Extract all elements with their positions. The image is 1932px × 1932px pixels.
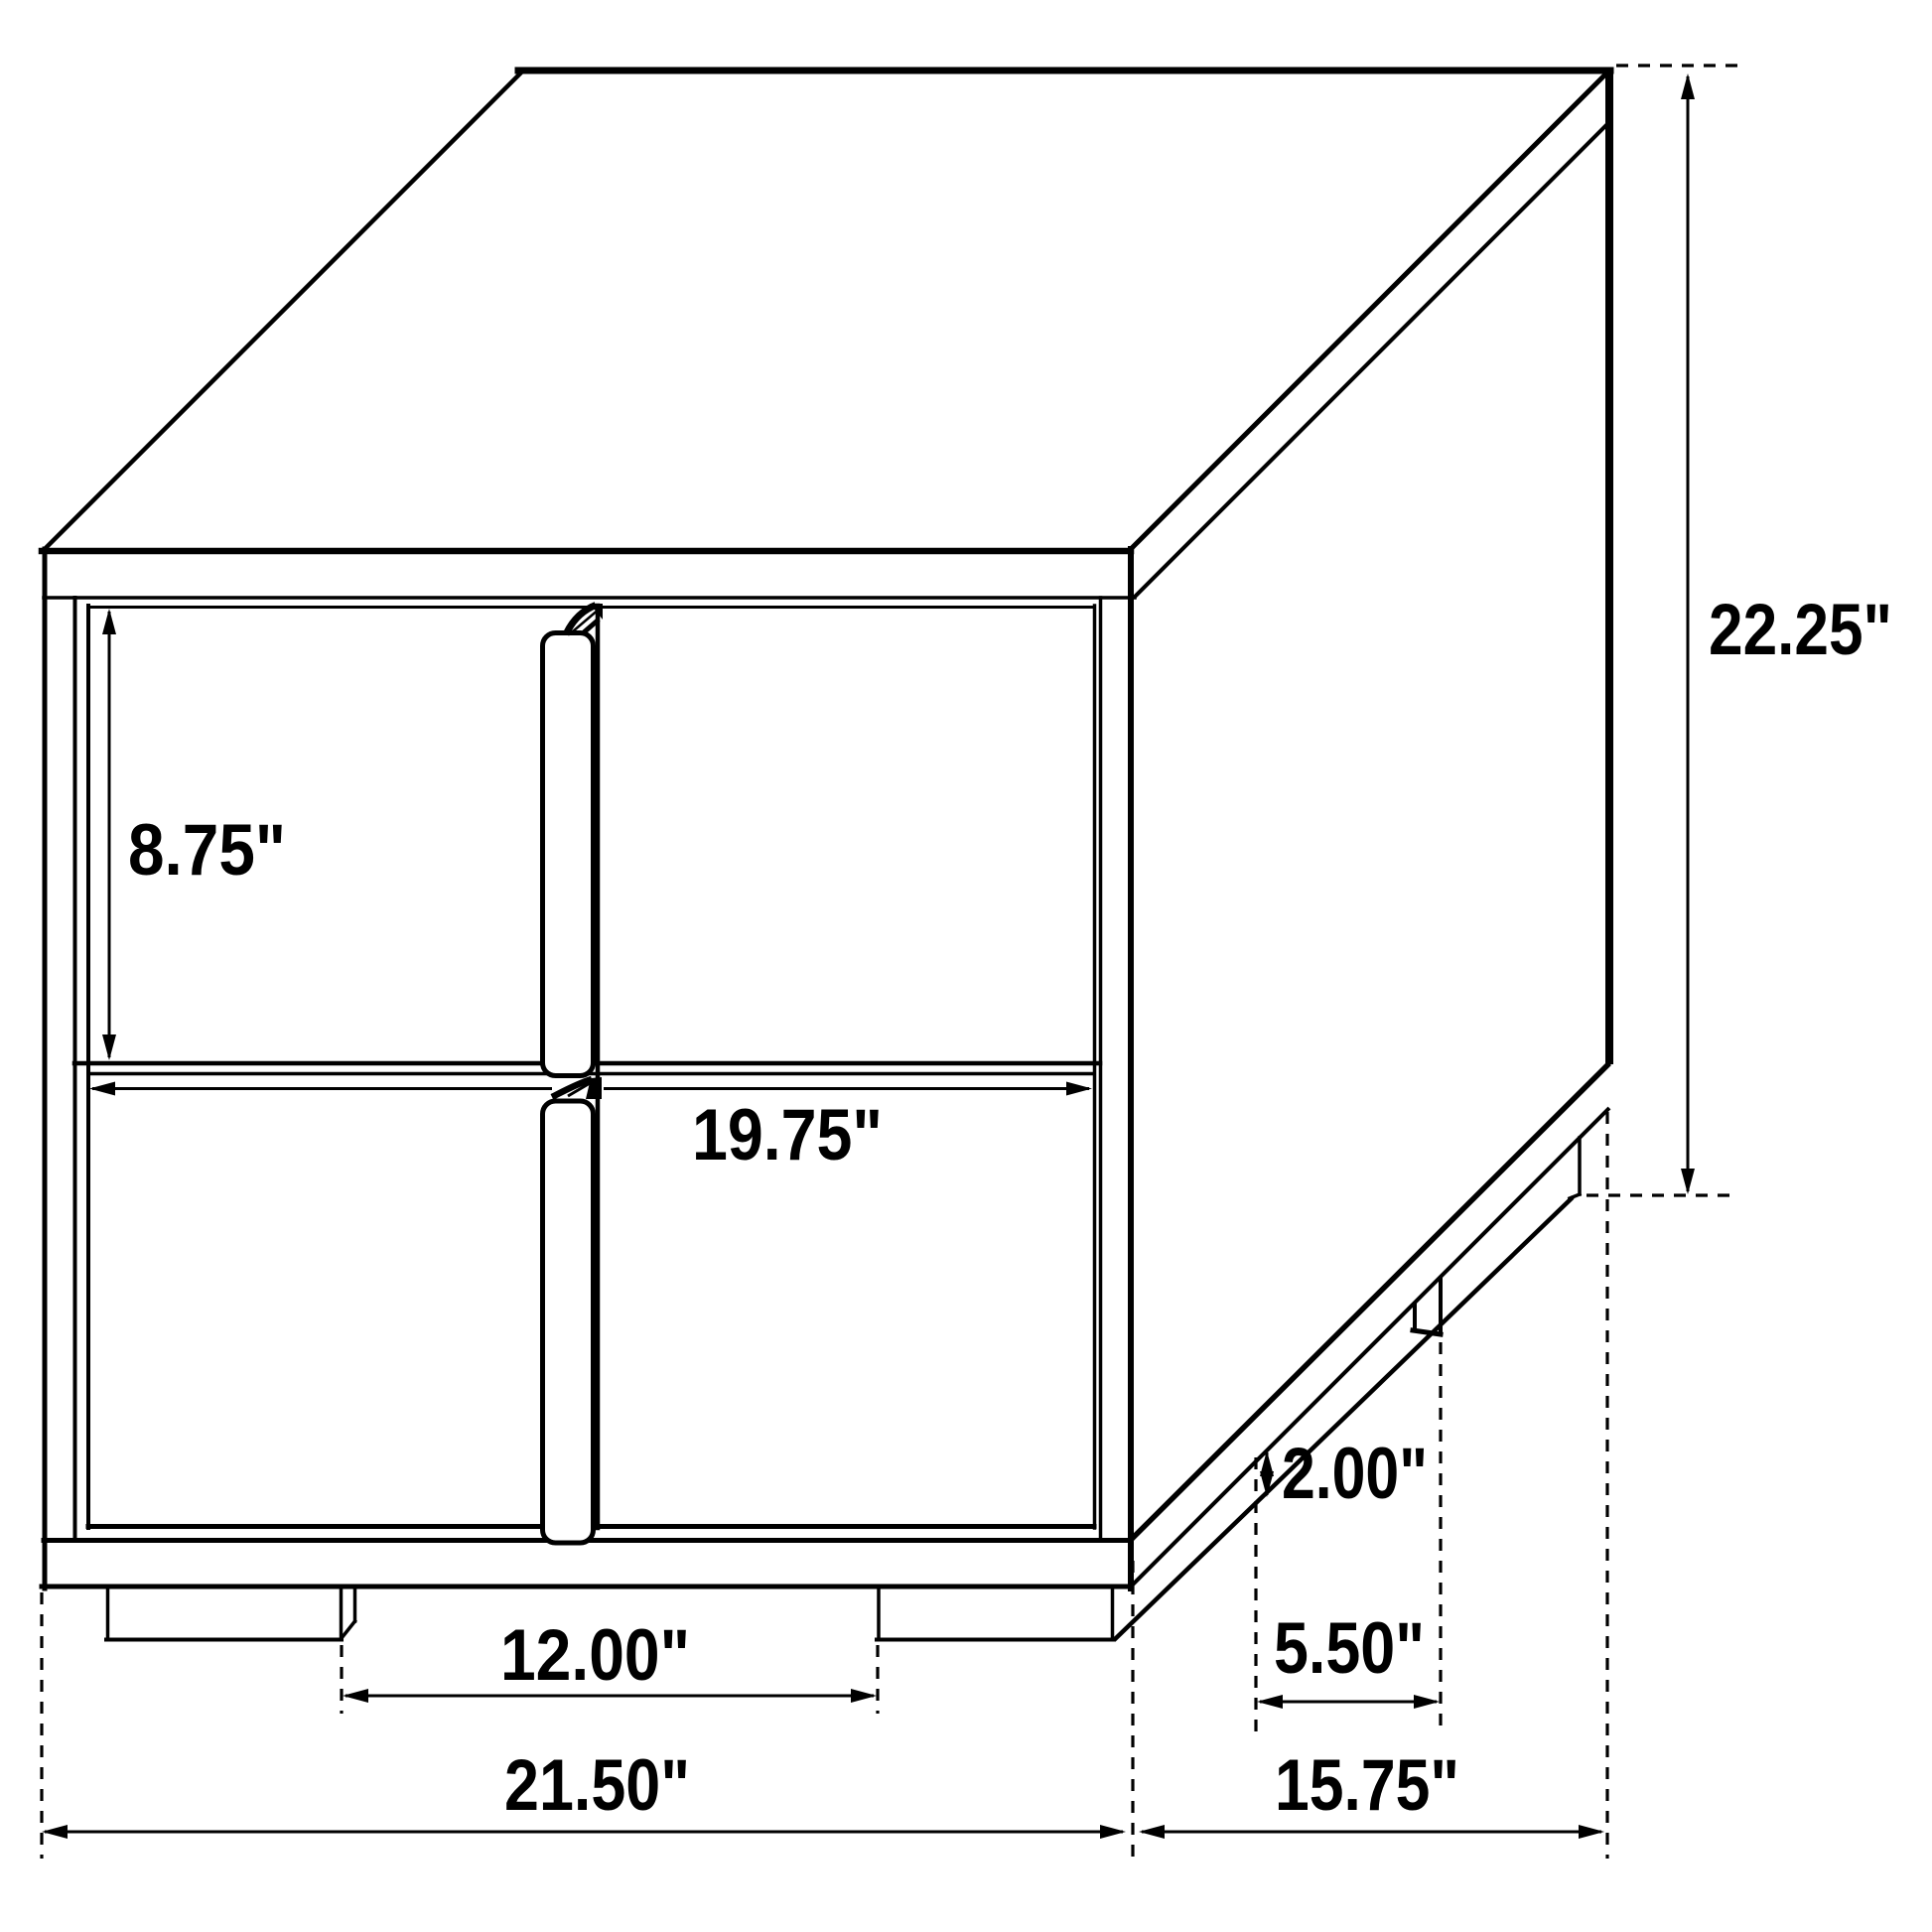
svg-text:21.50": 21.50"	[504, 1745, 690, 1826]
svg-text:2.00": 2.00"	[1282, 1434, 1428, 1514]
svg-text:19.75": 19.75"	[692, 1095, 883, 1175]
svg-text:22.25": 22.25"	[1709, 590, 1892, 670]
svg-text:15.75": 15.75"	[1275, 1745, 1459, 1826]
svg-text:12.00": 12.00"	[500, 1615, 690, 1696]
svg-text:5.50": 5.50"	[1274, 1608, 1425, 1689]
svg-text:8.75": 8.75"	[128, 810, 286, 891]
